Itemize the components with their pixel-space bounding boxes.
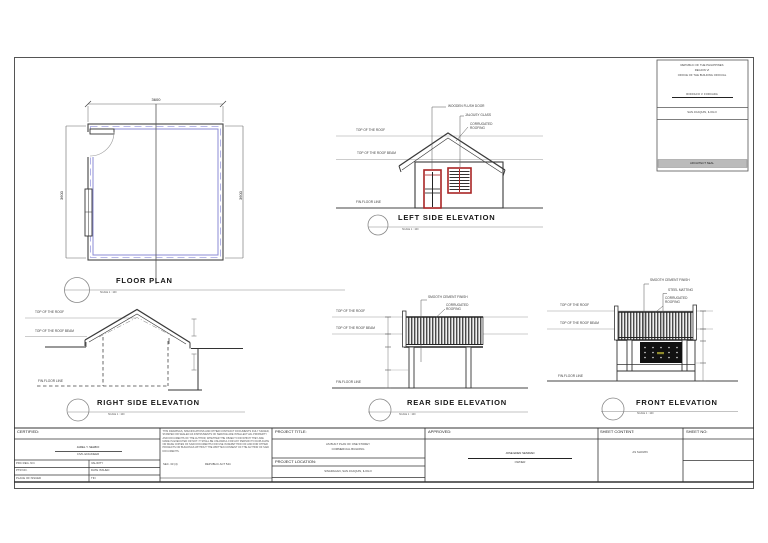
- floor-plan-dim-top: 3600: [152, 98, 161, 103]
- floor-plan-dim-left: 3600: [60, 191, 65, 200]
- official-block-line3: OFFICE OF THE BUILDING OFFICIAL: [678, 74, 727, 77]
- front-elev-scale: SCALE 1 : 100: [637, 413, 654, 416]
- rear-elev-callout-cement: SMOOTH CEMENT FINISH: [428, 296, 468, 300]
- left-elev-scale: SCALE 1 : 100: [402, 229, 419, 232]
- disclaimer-text: THIS DRAWINGS, SPECIFICATIONS AND OTHER …: [163, 430, 270, 453]
- certified-field-date: DATE ISSUED: [91, 469, 109, 472]
- left-elev-ref-floor: FIN.FLOOR LINE: [356, 201, 381, 205]
- certified-field-prc: PRC REG. NO.: [16, 462, 35, 465]
- floor-plan-dim-right: 3600: [239, 191, 244, 200]
- certified-field-place: PLACE OF ISSUED: [16, 477, 41, 480]
- floor-plan-drawing: [64, 101, 345, 303]
- official-location: SAN JOAQUIN, ILOILO: [687, 111, 717, 114]
- front-elev-ref-floor: FIN.FLOOR LINE: [558, 375, 583, 379]
- architect-seal-label: ARCHITECT SEAL: [690, 162, 714, 165]
- floor-plan-scale: SCALE 1 : 100: [100, 292, 117, 295]
- rear-elev-ref-beam: TOP OF THE ROOF BEAM: [336, 327, 375, 331]
- front-elev-callout-cement: SMOOTH CEMENT FINISH: [650, 279, 690, 283]
- certified-role: CIVIL ENGINEER: [77, 453, 99, 456]
- project-title-line1: AS BUILT PLAN OF ONE STOREY: [326, 443, 370, 446]
- sheet-linework: [0, 0, 768, 543]
- sheet-border: [15, 58, 754, 489]
- right-elev-ref-floor: FIN.FLOOR LINE: [38, 380, 63, 384]
- project-title-line2: COMMERCIAL BUILDING: [332, 448, 365, 451]
- left-elev-ref-beam: TOP OF THE ROOF BEAM: [357, 152, 396, 156]
- rear-elev-scale: SCALE 1 : 100: [399, 414, 416, 417]
- left-elev-title: LEFT SIDE ELEVATION: [398, 214, 495, 223]
- floor-plan-title: FLOOR PLAN: [116, 277, 173, 286]
- rear-elev-ref-roof: TOP OF THE ROOF: [336, 310, 365, 314]
- disclaimer-section: SEC. 33 (4): [163, 463, 178, 466]
- front-elev-title: FRONT ELEVATION: [636, 399, 718, 408]
- left-elev-ref-roof: TOP OF THE ROOF: [356, 129, 385, 133]
- disclaimer-act: REPUBLIC ACT 544: [205, 463, 231, 466]
- sheet-content-label: SHEET CONTENT:: [600, 430, 634, 435]
- front-elev-ref-roof: TOP OF THE ROOF: [560, 304, 589, 308]
- rear-elev-ref-floor: FIN.FLOOR LINE: [336, 381, 361, 385]
- left-elev-callout-roof: CORRUGATED ROOFING: [470, 123, 490, 130]
- title-block-grid: [14, 428, 754, 482]
- drawing-sheet: REPUBLIC OF THE PHILIPPINES REGION VI OF…: [0, 0, 768, 543]
- sheet-no-label: SHEET NO:: [686, 430, 708, 435]
- left-elev-callout-glass: JALOUSY GLASS: [465, 114, 491, 118]
- sheet-content-value: AS SHOWN: [632, 451, 647, 454]
- official-block-line1: REPUBLIC OF THE PHILIPPINES: [680, 64, 723, 67]
- rear-elev-callout-roof: CORRUGATED ROOFING: [446, 304, 466, 311]
- rear-elev-title: REAR SIDE ELEVATION: [407, 399, 507, 408]
- official-block-line2: REGION VI: [695, 69, 709, 72]
- front-elev-callout-matting: STEEL MATTING: [668, 289, 693, 293]
- approved-name: JOSE EDEN SENIDAD: [505, 452, 534, 455]
- certified-name: JAREL Y. SELBIO: [77, 446, 100, 449]
- approved-role: OWNER: [515, 461, 526, 464]
- project-title-label: PROJECT TITLE:: [275, 430, 307, 435]
- approved-label: APPROVED:: [428, 430, 451, 435]
- certified-field-tin: TIN: [91, 477, 96, 480]
- right-elev-scale: SCALE 1 : 100: [108, 414, 125, 417]
- left-elev-callout-door: WOODEN FLUSH DOOR: [448, 105, 484, 109]
- project-location-value: SINARAGAN, SAN JOAQUIN, ILOILO: [324, 470, 372, 473]
- project-location-label: PROJECT LOCATION:: [275, 460, 316, 465]
- certified-field-ptr: PTR NO.: [16, 469, 27, 472]
- front-elev-callout-roof: CORRUGATED ROOFING: [665, 297, 685, 304]
- front-elev-ref-beam: TOP OF THE ROOF BEAM: [560, 322, 599, 326]
- right-elev-ref-roof: TOP OF THE ROOF: [35, 311, 64, 315]
- official-name: RODOLFO V. FORCADA: [686, 93, 717, 96]
- right-elev-ref-beam: TOP OF THE ROOF BEAM: [35, 330, 74, 334]
- certified-field-validity: VALIDITY: [91, 462, 103, 465]
- right-elev-title: RIGHT SIDE ELEVATION: [97, 399, 200, 408]
- certified-label: CERTIFIED:: [17, 430, 39, 435]
